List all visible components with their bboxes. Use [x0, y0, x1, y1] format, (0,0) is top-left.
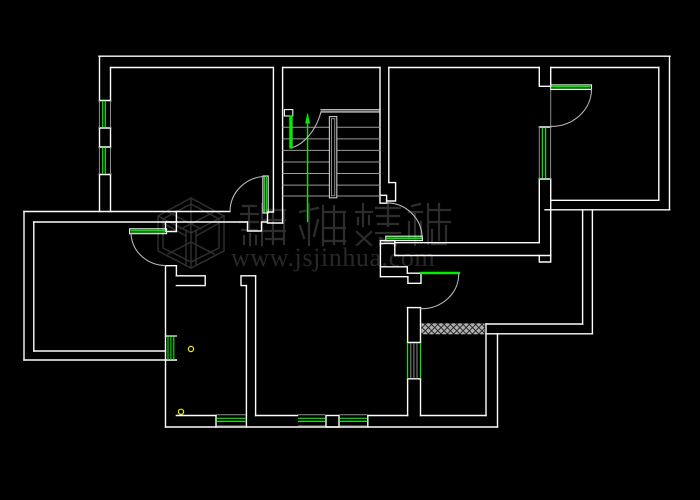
- svg-text:www.jsjinhua.com: www.jsjinhua.com: [231, 243, 435, 272]
